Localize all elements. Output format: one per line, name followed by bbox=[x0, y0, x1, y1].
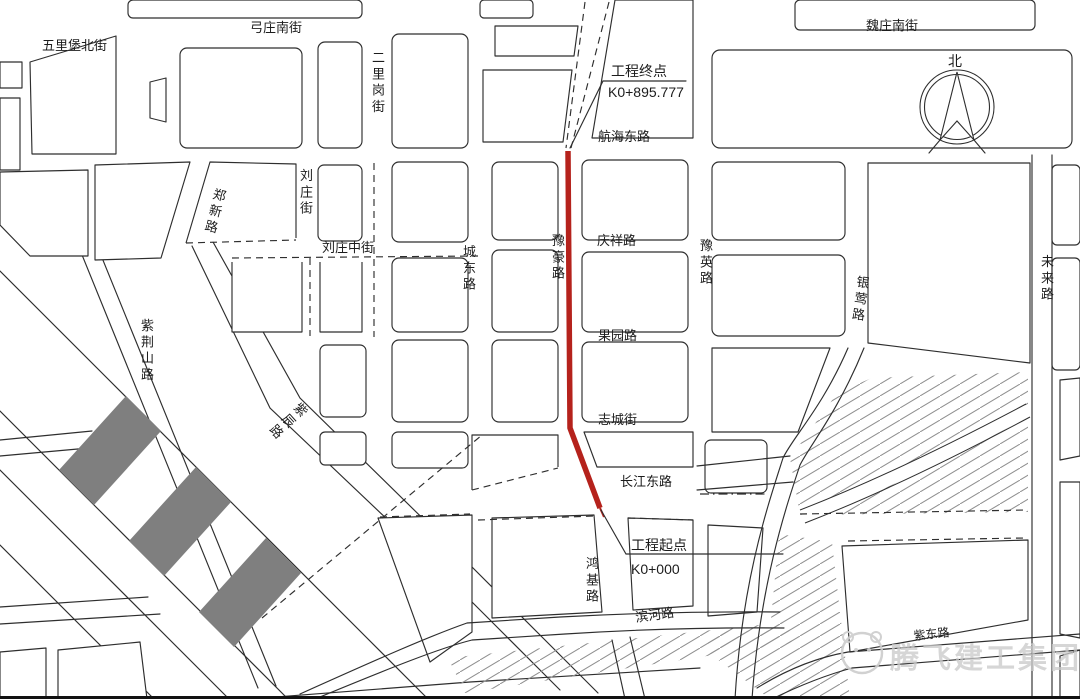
road-label-qingxiang: 庆祥路 bbox=[597, 233, 636, 248]
road-label-guoyuan: 果园路 bbox=[598, 328, 637, 343]
map-canvas: 北 腾飞建工集团 五里堡北街 弓庄南街 魏庄南街 二里岗街 郑新路 刘庄街 刘庄… bbox=[0, 0, 1080, 699]
project-end-label: 工程终点 bbox=[611, 63, 667, 79]
road-label-zhicheng: 志城街 bbox=[598, 412, 637, 427]
gray-corridor-blocks bbox=[59, 396, 301, 647]
road-label-yuhao: 豫豪路 bbox=[552, 233, 565, 281]
north-label: 北 bbox=[948, 53, 962, 69]
road-label-wulibao: 五里堡北街 bbox=[42, 38, 107, 53]
road-label-chengdong: 城东路 bbox=[463, 244, 476, 292]
road-label-liuzhuang: 刘庄街 bbox=[300, 168, 313, 216]
project-start-label: 工程起点 bbox=[631, 537, 687, 553]
construction-location-map: 北 腾飞建工集团 五里堡北街 弓庄南街 魏庄南街 二里岗街 郑新路 刘庄街 刘庄… bbox=[0, 0, 1080, 699]
road-label-changjiang: 长江东路 bbox=[620, 474, 672, 489]
road-label-hanghai: 航海东路 bbox=[598, 129, 650, 144]
road-label-hongji: 鸿基路 bbox=[586, 556, 599, 604]
road-label-yuying: 豫英路 bbox=[700, 238, 713, 286]
road-label-liuzhuangzhong: 刘庄中街 bbox=[322, 240, 374, 255]
project-start-chainage: K0+000 bbox=[631, 561, 680, 577]
road-label-zijingshan: 紫荆山路 bbox=[141, 318, 154, 382]
road-label-erligang: 二里岗街 bbox=[372, 50, 385, 114]
road-label-weizhuang: 魏庄南街 bbox=[866, 18, 918, 33]
road-label-gongzhuang: 弓庄南街 bbox=[250, 20, 302, 35]
project-end-chainage: K0+895.777 bbox=[608, 84, 684, 100]
watermark-text: 腾飞建工集团 bbox=[890, 642, 1080, 675]
road-label-weilai: 未来路 bbox=[1041, 254, 1054, 302]
road-label-zichen: 紫辰路 bbox=[267, 400, 311, 441]
